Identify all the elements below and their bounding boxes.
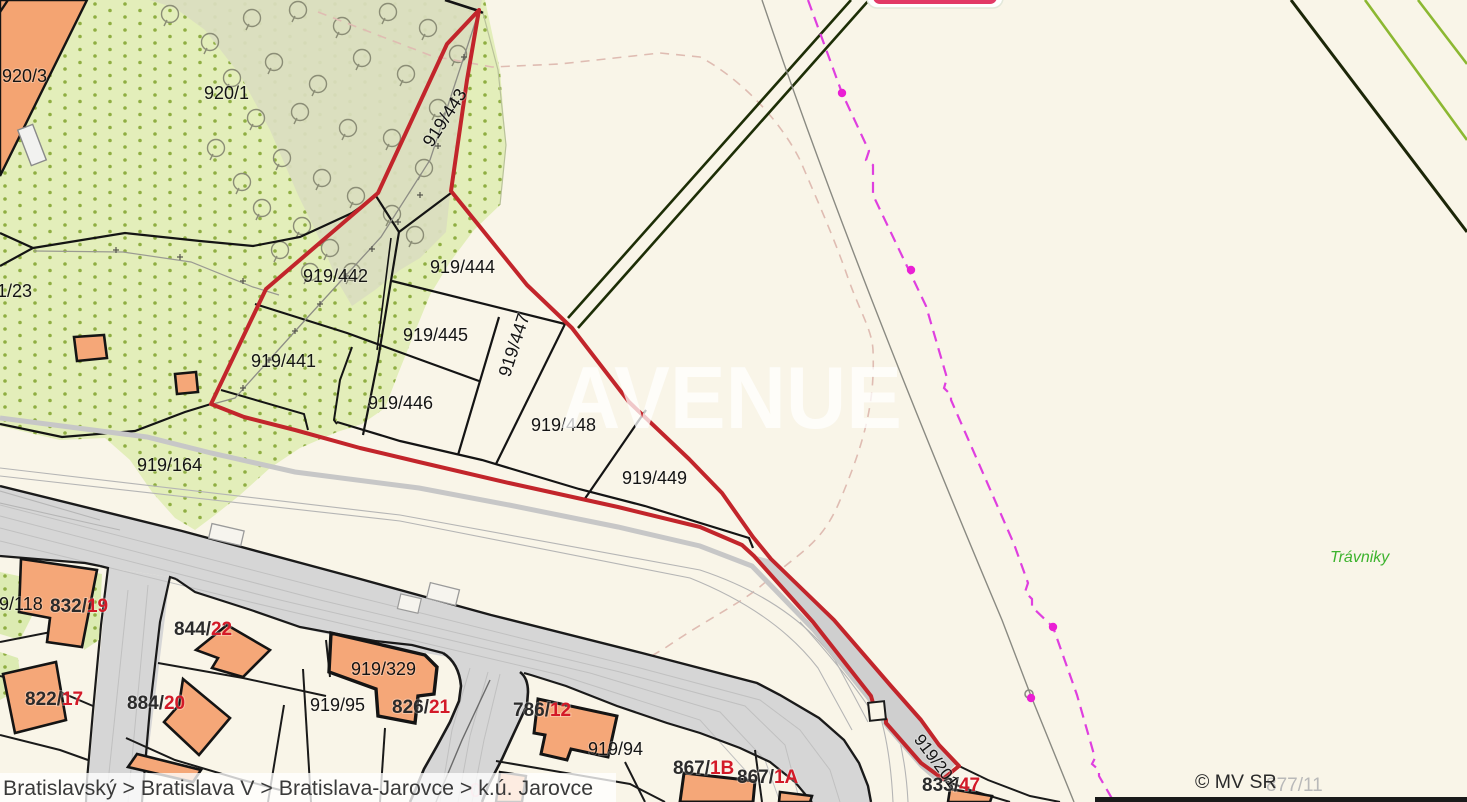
svg-text:786/12: 786/12: [513, 700, 571, 721]
svg-text:© MV SR: © MV SR: [1195, 771, 1277, 793]
svg-text:867/1B: 867/1B: [673, 758, 734, 779]
svg-text:919/445: 919/445: [403, 325, 468, 345]
svg-text:919/441: 919/441: [251, 351, 316, 371]
svg-text:884/20: 884/20: [127, 693, 185, 714]
svg-text:919/442: 919/442: [303, 266, 368, 286]
svg-text:844/22: 844/22: [174, 619, 232, 640]
svg-text:822/17: 822/17: [25, 689, 83, 710]
svg-text:919/446: 919/446: [368, 393, 433, 413]
svg-text:919/95: 919/95: [310, 695, 365, 715]
svg-text:919/329: 919/329: [351, 659, 416, 679]
svg-text:91/23: 91/23: [0, 281, 32, 301]
svg-text:920/1: 920/1: [204, 83, 249, 103]
svg-text:826/21: 826/21: [392, 697, 451, 718]
svg-text:919/164: 919/164: [137, 455, 202, 475]
svg-text:919/444: 919/444: [430, 257, 495, 277]
svg-text:920/3: 920/3: [2, 66, 47, 86]
svg-text:Trávniky: Trávniky: [1330, 549, 1390, 566]
svg-text:919/449: 919/449: [622, 468, 687, 488]
svg-text:919/94: 919/94: [588, 739, 643, 759]
svg-text:832/19: 832/19: [50, 596, 108, 617]
svg-text:Bratislavský > Bratislava V >: Bratislavský > Bratislava V > Bratislava…: [3, 776, 593, 800]
svg-text:919/118: 919/118: [0, 594, 43, 614]
svg-text:867/1A: 867/1A: [737, 767, 799, 788]
svg-text:AVENUE: AVENUE: [560, 348, 902, 447]
